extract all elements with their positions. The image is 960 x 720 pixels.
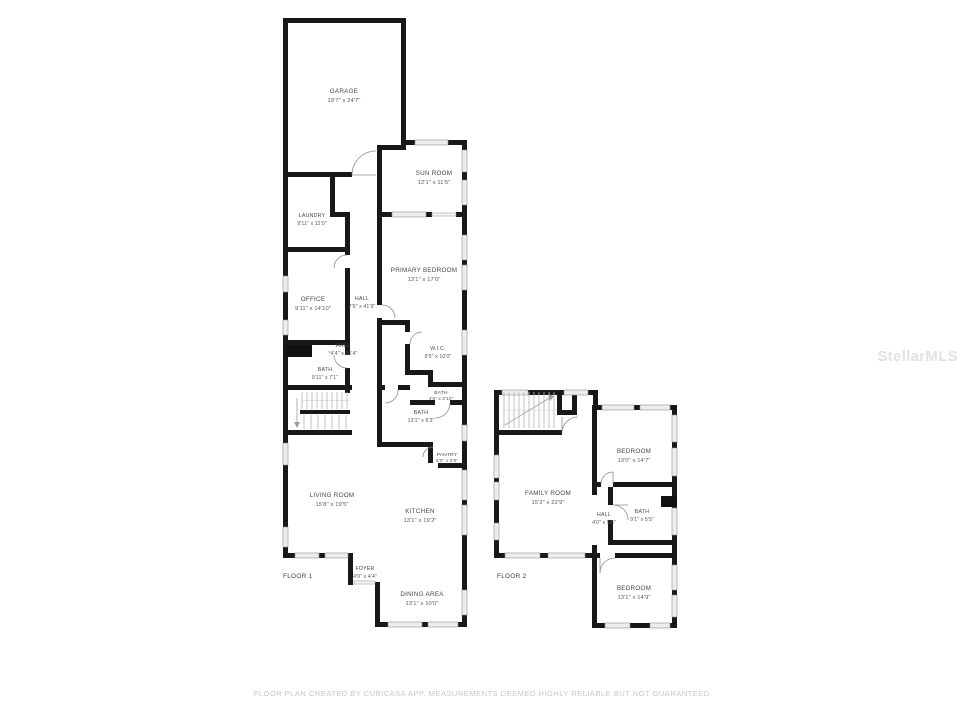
svg-text:9'11" x 12'0": 9'11" x 12'0" — [297, 221, 326, 227]
floor-plan-page: GARAGE 19'7" x 24'7" SUN ROOM 12'1" x 11… — [0, 0, 960, 720]
sunroom-door — [432, 213, 456, 216]
room-label-primary-bedroom: PRIMARY BEDROOM 13'1" x 17'0" — [391, 267, 458, 283]
svg-text:HALL: HALL — [355, 296, 369, 302]
svg-text:SUN ROOM: SUN ROOM — [416, 170, 453, 177]
svg-text:HALL: HALL — [597, 512, 611, 518]
bath-blackbox — [661, 496, 677, 507]
room-label-wic: W.I.C. 8'5" x 10'0" — [425, 346, 452, 360]
svg-text:W.I.C.: W.I.C. — [430, 346, 446, 352]
svg-text:PANTRY: PANTRY — [437, 452, 458, 458]
room-label-garage: GARAGE 19'7" x 24'7" — [327, 88, 360, 104]
room-label-bath-small: BATH 4'9" x 2'10" — [429, 390, 454, 402]
svg-text:HALL: HALL — [336, 343, 350, 349]
svg-text:BATH: BATH — [318, 367, 332, 373]
room-label-office: OFFICE 9'11" x 14'10" — [295, 296, 331, 312]
floor2-room-labels: FAMILY ROOM 15'3" x 22'9" BEDROOM 13'0" … — [525, 448, 654, 601]
svg-text:BATH: BATH — [635, 509, 649, 515]
floor1-plan: GARAGE 19'7" x 24'7" SUN ROOM 12'1" x 11… — [283, 18, 467, 627]
svg-text:4'0" x 5'5": 4'0" x 5'5" — [592, 520, 616, 526]
svg-text:7'6" x 41'9": 7'6" x 41'9" — [349, 304, 376, 310]
floor2-plan: FAMILY ROOM 15'3" x 22'9" BEDROOM 13'0" … — [494, 390, 677, 628]
svg-text:LIVING ROOM: LIVING ROOM — [310, 492, 355, 499]
closet-blackbox — [286, 345, 312, 357]
floor1-label: FLOOR 1 — [283, 573, 313, 580]
svg-text:BATH: BATH — [414, 410, 428, 416]
svg-text:13'1" x 10'0": 13'1" x 10'0" — [405, 601, 438, 607]
room-label-kitchen: KITCHEN 13'1" x 19'2" — [403, 508, 436, 524]
svg-text:LAUNDRY: LAUNDRY — [299, 213, 326, 219]
svg-text:13'0" x 14'7": 13'0" x 14'7" — [617, 458, 650, 464]
room-label-hall-main: HALL 7'6" x 41'9" — [349, 296, 376, 310]
room-label-laundry: LAUNDRY 9'11" x 12'0" — [297, 213, 326, 227]
floor1-walls — [283, 18, 467, 627]
disclaimer-text: FLOOR PLAN CREATED BY CUBICASA APP. MEAS… — [254, 689, 713, 698]
svg-text:13'1" x 17'0": 13'1" x 17'0" — [407, 277, 440, 283]
svg-text:BATH: BATH — [434, 390, 448, 396]
room-label-sun-room: SUN ROOM 12'1" x 11'5" — [416, 170, 453, 186]
svg-text:*4'4" x 10'4": *4'4" x 10'4" — [329, 351, 358, 357]
svg-text:15'8" x 19'5": 15'8" x 19'5" — [315, 502, 348, 508]
svg-text:BEDROOM: BEDROOM — [617, 448, 651, 455]
stellar-mls-watermark: StellarMLS — [877, 348, 958, 365]
svg-text:9'1" x 5'5": 9'1" x 5'5" — [630, 517, 654, 523]
floor2-windows — [494, 390, 677, 628]
front-door — [354, 581, 375, 584]
room-label-bath-main: BATH 13'1" x 9'3" — [408, 410, 435, 424]
room-label-bath-left: BATH 9'11" x 7'1" — [312, 367, 338, 381]
floor-plan-canvas: GARAGE 19'7" x 24'7" SUN ROOM 12'1" x 11… — [0, 0, 960, 720]
stairs-direction-arrow — [294, 422, 300, 428]
svg-text:9'11" x 7'1": 9'11" x 7'1" — [312, 375, 338, 381]
room-label-foyer: FOYER 4'9" x 4'4" — [353, 566, 377, 580]
svg-text:15'3" x 22'9": 15'3" x 22'9" — [531, 500, 564, 506]
room-label-dining-area: DINING AREA 13'1" x 10'0" — [400, 591, 444, 607]
floor1-room-labels: GARAGE 19'7" x 24'7" SUN ROOM 12'1" x 11… — [295, 88, 458, 607]
svg-text:8'5" x 10'0": 8'5" x 10'0" — [425, 354, 452, 360]
room-label-family-room: FAMILY ROOM 15'3" x 22'9" — [525, 490, 571, 506]
svg-text:4'9" x 2'10": 4'9" x 2'10" — [429, 396, 454, 402]
svg-text:19'7" x 24'7": 19'7" x 24'7" — [327, 98, 360, 104]
svg-text:GARAGE: GARAGE — [330, 88, 358, 95]
room-label-bedroom-top: BEDROOM 13'0" x 14'7" — [617, 448, 651, 464]
room-label-bath-floor2: BATH 9'1" x 5'5" — [630, 509, 654, 523]
room-label-hall-floor2: HALL 4'0" x 5'5" — [592, 512, 616, 526]
room-label-living-room: LIVING ROOM 15'8" x 19'5" — [310, 492, 355, 508]
floor2-stairs — [502, 392, 557, 428]
svg-text:13'1" x 9'3": 13'1" x 9'3" — [408, 418, 435, 424]
svg-text:5'0" x 3'8": 5'0" x 3'8" — [436, 458, 458, 464]
svg-text:FAMILY ROOM: FAMILY ROOM — [525, 490, 571, 497]
svg-text:BEDROOM: BEDROOM — [617, 585, 651, 592]
room-label-pantry: PANTRY 5'0" x 3'8" — [436, 452, 458, 464]
svg-text:PRIMARY BEDROOM: PRIMARY BEDROOM — [391, 267, 458, 274]
svg-text:12'1" x 11'5": 12'1" x 11'5" — [418, 180, 451, 186]
svg-text:13'1" x 19'2": 13'1" x 19'2" — [403, 518, 436, 524]
svg-text:KITCHEN: KITCHEN — [405, 508, 435, 515]
svg-text:OFFICE: OFFICE — [301, 296, 326, 303]
svg-text:FOYER: FOYER — [355, 566, 374, 572]
floor2-walls — [494, 390, 677, 628]
floor2-label: FLOOR 2 — [497, 573, 527, 580]
svg-text:13'1" x 14'9": 13'1" x 14'9" — [617, 595, 650, 601]
svg-text:9'11" x 14'10": 9'11" x 14'10" — [295, 306, 331, 312]
svg-text:DINING AREA: DINING AREA — [400, 591, 444, 598]
svg-text:4'9" x 4'4": 4'9" x 4'4" — [353, 574, 377, 580]
room-label-hall-small: HALL *4'4" x 10'4" — [329, 343, 358, 357]
room-label-bedroom-bottom: BEDROOM 13'1" x 14'9" — [617, 585, 651, 601]
